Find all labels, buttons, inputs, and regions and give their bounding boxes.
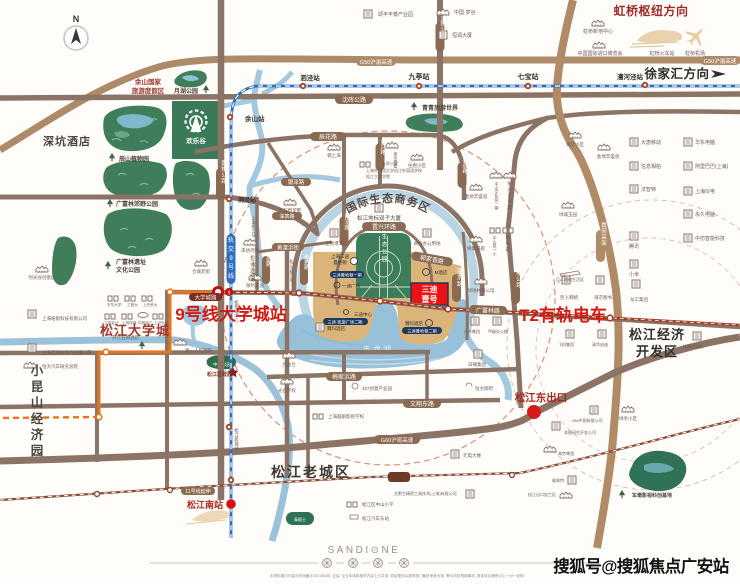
svg-text:深坑酒店: 深坑酒店 (43, 134, 91, 148)
svg-text:欢乐谷: 欢乐谷 (185, 136, 206, 145)
svg-text:号: 号 (228, 264, 234, 271)
svg-text:沈砖公路: 沈砖公路 (342, 96, 366, 104)
svg-text:三迪曼哈顿二期: 三迪曼哈顿二期 (407, 328, 436, 335)
svg-text:9号线大学城站: 9号线大学城站 (175, 304, 286, 324)
svg-text:昆: 昆 (31, 379, 44, 394)
svg-text:恒大御府: 恒大御府 (475, 385, 493, 392)
svg-text:月湖公园: 月湖公园 (173, 87, 198, 95)
svg-text:工程大: 工程大 (127, 302, 138, 307)
svg-text:嘉闵高架: 嘉闵高架 (600, 221, 607, 247)
svg-text:东华大学: 东华大学 (107, 302, 122, 307)
svg-text:上海外国语大学松江外国语学校: 上海外国语大学松江外国语学校 (366, 167, 422, 173)
svg-text:观堂小区: 观堂小区 (566, 141, 584, 148)
svg-text:上外贸大: 上外贸大 (143, 302, 158, 307)
svg-text:银泽路: 银泽路 (288, 178, 305, 186)
svg-text:信息相柏: 信息相柏 (641, 163, 661, 170)
svg-text:梅家浜路: 梅家浜路 (332, 373, 356, 381)
svg-text:上海松江站: 上海松江站 (251, 215, 257, 239)
svg-text:上海仪电: 上海仪电 (695, 188, 715, 195)
svg-text:法智特: 法智特 (641, 186, 656, 193)
svg-text:虹桥机场: 虹桥机场 (685, 50, 705, 57)
svg-text:黄渡浜街: 黄渡浜街 (277, 244, 300, 252)
svg-text:泰晤士: 泰晤士 (294, 516, 306, 522)
svg-text:松江区政府: 松江区政府 (207, 371, 232, 378)
svg-text:上海蓝瑞奂电气有限公司: 上海蓝瑞奂电气有限公司 (42, 349, 92, 356)
svg-text:时光谷创意园: 时光谷创意园 (29, 274, 56, 281)
svg-text:经: 经 (31, 411, 44, 426)
svg-text:三迪中心: 三迪中心 (354, 311, 372, 318)
svg-text:大学城路: 大学城路 (194, 294, 217, 302)
svg-text:小: 小 (30, 363, 44, 378)
svg-text:户夫集团: 户夫集团 (464, 328, 480, 334)
svg-text:宜兴路: 宜兴路 (380, 139, 386, 156)
svg-text:园: 园 (31, 444, 44, 458)
svg-text:松江区中山小学: 松江区中山小学 (362, 501, 394, 508)
svg-text:海京图书: 海京图书 (594, 294, 612, 301)
svg-text:日曜集团: 日曜集团 (468, 361, 486, 368)
svg-text:中山文化苑一期: 中山文化苑一期 (495, 181, 500, 211)
svg-text:置兴环路: 置兴环路 (372, 223, 396, 231)
svg-text:黄格路: 黄格路 (303, 254, 309, 271)
svg-text:广富林遗址: 广富林遗址 (116, 258, 146, 266)
svg-text:M酒店: M酒店 (435, 269, 448, 276)
svg-text:飞科集团: 飞科集团 (558, 341, 574, 347)
svg-text:济: 济 (31, 427, 44, 442)
svg-text:清华启迪: 清华启迪 (592, 341, 608, 347)
svg-text:松江经济: 松江经济 (629, 327, 685, 342)
svg-text:松江老城区: 松江老城区 (271, 464, 351, 480)
svg-text:N: N (73, 14, 80, 24)
svg-text:车墩影视科创基地: 车墩影视科创基地 (632, 492, 672, 499)
svg-text:中山二村: 中山二村 (506, 235, 511, 252)
svg-text:中仿智能科技: 中仿智能科技 (695, 235, 725, 242)
svg-text:中国·梦谷: 中国·梦谷 (454, 9, 476, 16)
svg-text:油墩路: 油墩路 (462, 158, 468, 175)
svg-text:漕河泾站: 漕河泾站 (617, 72, 644, 81)
svg-text:G60沪昆高速: G60沪昆高速 (381, 436, 414, 444)
svg-text:开发区: 开发区 (636, 344, 678, 359)
svg-text:徐家汇方向: 徐家汇方向 (643, 66, 709, 81)
svg-text:涞坊河畔: 涞坊河畔 (241, 247, 259, 254)
svg-text:山: 山 (31, 395, 44, 410)
svg-text:交: 交 (228, 245, 234, 253)
svg-text:万科郡望墅: 万科郡望墅 (279, 207, 302, 214)
svg-text:轨: 轨 (228, 236, 234, 244)
svg-text:龙工集团: 龙工集团 (630, 296, 648, 303)
svg-text:甲级办公楼: 甲级办公楼 (488, 328, 508, 334)
svg-text:青青旅游世界: 青青旅游世界 (422, 104, 459, 112)
svg-text:三迪: 三迪 (422, 284, 438, 294)
svg-text:松江新城站: 松江新城站 (234, 427, 240, 452)
svg-text:辰山植物园: 辰山植物园 (119, 155, 149, 163)
svg-text:第一人民医院: 第一人民医院 (185, 347, 212, 354)
svg-text:洞泾站: 洞泾站 (238, 196, 256, 204)
svg-text:魏玛酒店: 魏玛酒店 (405, 320, 423, 327)
svg-text:小米: 小米 (629, 271, 639, 278)
svg-text:虹桥火车站: 虹桥火车站 (649, 50, 674, 57)
svg-text:七宝站: 七宝站 (518, 72, 539, 81)
svg-text:松江地标双子大厦: 松江地标双子大厦 (357, 214, 402, 222)
svg-text:搜狐号@搜狐焦点广安站: 搜狐号@搜狐焦点广安站 (553, 556, 730, 576)
svg-text:涞寅路: 涞寅路 (279, 213, 294, 220)
svg-text:虹桥新地中心: 虹桥新地中心 (583, 28, 613, 35)
svg-text:绿亭小区: 绿亭小区 (619, 415, 637, 422)
svg-text:线: 线 (228, 272, 234, 280)
svg-text:金地丰盛道: 金地丰盛道 (597, 153, 620, 160)
svg-text:G50沪渝高速: G50沪渝高速 (704, 57, 737, 65)
svg-text:曼哈顿: 曼哈顿 (333, 259, 347, 266)
svg-text:三迪曼哈顿一期: 三迪曼哈顿一期 (332, 272, 361, 279)
svg-text:松江出口加工区: 松江出口加工区 (528, 491, 556, 497)
svg-text:G50沪渝高速: G50沪渝高速 (360, 58, 393, 66)
svg-text:上海三迪: 上海三迪 (331, 253, 349, 260)
svg-text:宝物港湾: 宝物港湾 (325, 240, 343, 247)
svg-text:一迪广场: 一迪广场 (342, 283, 360, 290)
svg-text:SANDI⊙NE: SANDI⊙NE (328, 545, 401, 556)
svg-text:本资料展示内容与时间截止2021年6月, 过后, 企业本体和: 本资料展示内容与时间截止2021年6月, 过后, 企业本体和相关内容上方并茂, … (270, 573, 525, 578)
svg-text:嘉松公路: 嘉松公路 (220, 159, 227, 185)
svg-text:保利溪语: 保利溪语 (246, 282, 264, 289)
svg-text:余山国家: 余山国家 (134, 77, 162, 86)
svg-text:松江大融广场: 松江大融广场 (289, 258, 294, 282)
svg-text:松江东出口: 松江东出口 (515, 391, 568, 404)
svg-text:沪松公路: 沪松公路 (515, 263, 522, 289)
svg-text:余山站: 余山站 (244, 114, 265, 123)
svg-text:虹桥枢纽方向: 虹桥枢纽方向 (613, 3, 688, 18)
svg-text:文化公园: 文化公园 (115, 266, 140, 274)
svg-text:永久电脑: 永久电脑 (695, 211, 715, 218)
svg-text:松江万达广场: 松江万达广场 (250, 254, 256, 284)
svg-text:拉犟华云厨: 拉犟华云厨 (683, 343, 703, 349)
svg-text:泗泾站: 泗泾站 (300, 73, 320, 82)
svg-text:11号线延伸: 11号线延伸 (185, 488, 210, 495)
svg-text:艾默生精密工具技术(上海)有限公司: 艾默生精密工具技术(上海)有限公司 (394, 490, 457, 496)
svg-text:光星路: 光星路 (265, 251, 271, 268)
svg-text:上海皓银科技有限公司: 上海皓银科技有限公司 (42, 315, 87, 322)
svg-text:松江大学城: 松江大学城 (100, 323, 170, 338)
svg-text:407创意产业园: 407创意产业园 (362, 385, 393, 392)
svg-text:旅游度假区: 旅游度假区 (132, 86, 165, 95)
svg-text:大唐移动: 大唐移动 (641, 139, 661, 146)
svg-text:绿城玉园: 绿城玉园 (559, 211, 577, 218)
svg-text:上海越剧影视学校: 上海越剧影视学校 (328, 413, 364, 420)
svg-text:松江立信学院: 松江立信学院 (366, 173, 390, 179)
svg-text:绿地林荫公馆: 绿地林荫公馆 (468, 287, 495, 294)
svg-text:阿里巴巴(上海): 阿里巴巴(上海) (695, 163, 729, 170)
svg-text:御上海: 御上海 (327, 152, 341, 159)
svg-text:松江汽车东站: 松江汽车东站 (362, 515, 389, 522)
svg-text:维翠特: 维翠特 (552, 477, 564, 483)
svg-text:腾讯: 腾讯 (629, 243, 639, 250)
svg-text:中山苑一小: 中山苑一小 (493, 235, 498, 257)
svg-text:金地丰盛道: 金地丰盛道 (465, 193, 488, 200)
svg-text:望东路: 望东路 (456, 267, 463, 288)
svg-text:广富林郊野公园: 广富林郊野公园 (116, 200, 158, 208)
svg-text:T2有轨电车: T2有轨电车 (519, 305, 607, 325)
svg-text:光启学校: 光启学校 (278, 387, 296, 394)
svg-text:弗劳啤酒: 弗劳啤酒 (558, 450, 574, 456)
svg-text:巨人网络: 巨人网络 (560, 294, 578, 301)
svg-text:九亭站: 九亭站 (408, 72, 430, 81)
svg-text:本图研究开发公司: 本图研究开发公司 (564, 429, 596, 435)
svg-text:商务办公用地: 商务办公用地 (414, 240, 441, 247)
svg-text:九龙仓: 九龙仓 (282, 361, 296, 368)
svg-text:人民北路: 人民北路 (344, 210, 350, 231)
svg-text:仓城老街: 仓城老街 (192, 268, 210, 275)
svg-text:颂丰丰泰产业园: 颂丰丰泰产业园 (378, 11, 413, 18)
svg-text:保集豪庭: 保集豪庭 (467, 245, 485, 252)
svg-text:壹号: 壹号 (422, 294, 438, 304)
svg-text:恒润大厦: 恒润大厦 (452, 32, 472, 39)
svg-text:三迪·凯旋广场二期: 三迪·凯旋广场二期 (328, 319, 363, 326)
svg-text:中国国际进口博览会: 中国国际进口博览会 (577, 50, 622, 57)
svg-text:286中国有限公司: 286中国有限公司 (572, 417, 603, 423)
svg-text:五厍小学: 五厍小学 (382, 160, 398, 166)
svg-text:松江南站: 松江南站 (187, 499, 223, 510)
svg-text:恒大汽车研究总院: 恒大汽车研究总院 (42, 363, 78, 370)
svg-text:文翔东路: 文翔东路 (410, 400, 434, 408)
svg-text:华东电脑: 华东电脑 (695, 139, 715, 146)
svg-text:辰花路: 辰花路 (319, 133, 337, 141)
svg-text:巨人网络生活区: 巨人网络生活区 (556, 276, 584, 282)
svg-text:魏玛酒店: 魏玛酒店 (327, 325, 345, 332)
svg-text:元电大楼: 元电大楼 (463, 452, 481, 459)
svg-text:中山文化苑二期: 中山文化苑二期 (508, 181, 513, 211)
svg-text:9: 9 (228, 291, 231, 297)
